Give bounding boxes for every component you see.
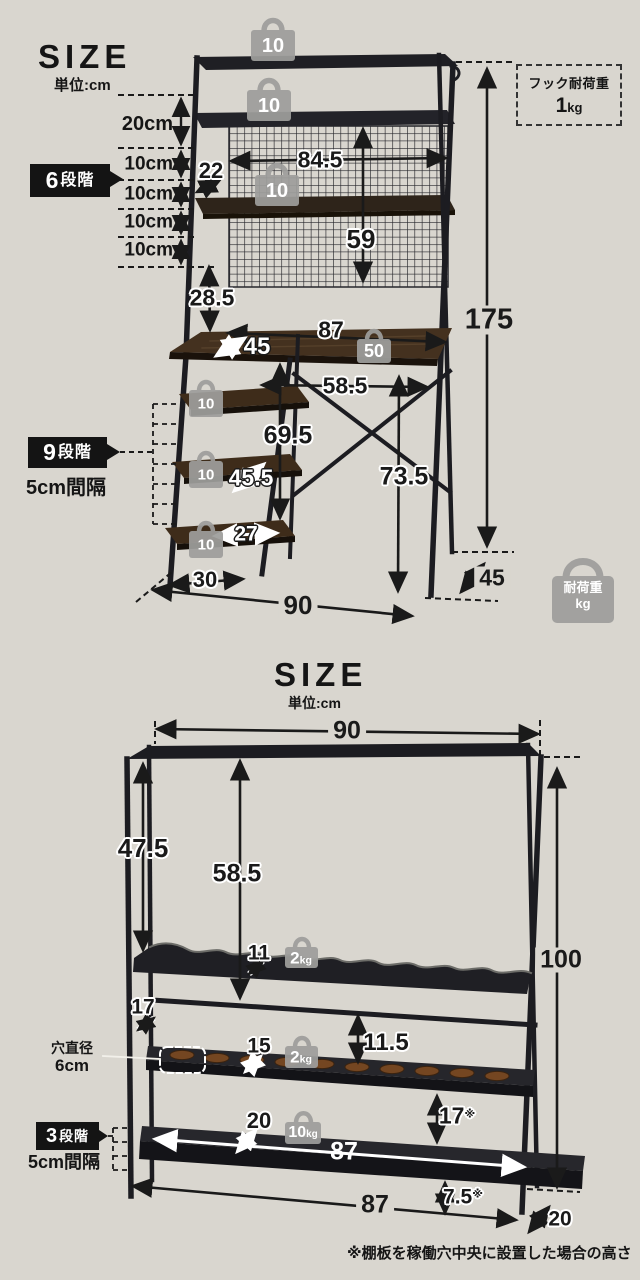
dim-shelf1-depth: 11 (248, 943, 270, 964)
three-steps-label: 3段階 (36, 1122, 99, 1150)
dim-side-width: 27 (234, 524, 257, 545)
dim-rack-front-height: 47.5 (118, 835, 169, 861)
left-measure-20cm: 20cm (95, 114, 173, 134)
dim-hutch-to-desk: 28.5 (190, 287, 235, 310)
six-steps-label: 6段階 (30, 164, 110, 197)
bag-10-5: 10 (198, 468, 215, 483)
three-steps-sub: 5cm間隔 (28, 1153, 100, 1171)
dim-bottom-width: 87 (356, 1193, 394, 1218)
dim-rack-width: 90 (328, 719, 366, 744)
nine-steps-label: 9段階 (28, 437, 107, 468)
top-size-unit: 単位:cm (54, 78, 111, 93)
dim-rack-depth: 20 (548, 1209, 571, 1230)
hook-load-title: フック耐荷重 (518, 73, 620, 92)
dim-hutch-gap: 22 (199, 160, 223, 182)
dim-total-height: 175 (460, 306, 518, 335)
bag-10-4: 10 (198, 397, 215, 412)
dim-side-depth: 30 (193, 569, 217, 591)
dim-mesh-width: 84.5 (298, 149, 343, 172)
left-measure-10cm-3: 10cm (95, 213, 173, 232)
bag-10-1: 10 (262, 36, 284, 56)
dim-shelf3-depth: 20 (247, 1110, 271, 1132)
bag-10-3: 10 (266, 181, 288, 201)
bag-2kg-1: 2kg (290, 950, 312, 967)
dim-desk-width: 87 (318, 319, 344, 342)
dim-desk-depth: 45 (244, 335, 271, 359)
bag-10-2: 10 (258, 96, 280, 116)
bag-2kg-2: 2kg (290, 1049, 312, 1066)
furniture-size-diagram: SIZE 単位:cm フック耐荷重 1kg 20cm 10cm 10cm 10c… (0, 0, 640, 1280)
load-capacity-bag: 耐荷重 kg (552, 580, 614, 611)
bag-10-6: 10 (198, 538, 215, 553)
hook-load-box: フック耐荷重 1kg (516, 64, 622, 126)
bottom-size-title: SIZE (274, 658, 367, 691)
bottom-size-unit: 単位:cm (288, 696, 341, 710)
footnote: ※棚板を稼働穴中央に設置した場合の高さ (347, 1246, 632, 1261)
hole-diameter-label: 穴直径 6cm (42, 1040, 102, 1076)
dim-knee-height: 69.5 (264, 424, 313, 449)
dim-knee-width: 58.5 (323, 375, 368, 398)
dim-side-diag: 45.5 (229, 467, 274, 490)
dim-shelf2-shelf3-gap: 17※ (439, 1105, 475, 1128)
holed-shelf (103, 1046, 535, 1097)
hook-load-value: 1kg (518, 94, 620, 118)
dim-mesh-height: 59 (347, 226, 376, 252)
left-measure-10cm-4: 10cm (95, 241, 173, 260)
dim-desk-height: 73.5 (380, 465, 429, 490)
dim-floor-depth: 45 (474, 567, 510, 590)
dim-rail-shelf2-gap: 11.5 (363, 1031, 408, 1055)
dim-floor-width: 90 (279, 592, 318, 618)
dim-foot-height: 7.5※ (443, 1187, 483, 1208)
bag-50-desk: 50 (364, 342, 384, 360)
dim-shelf-width: 87 (330, 1140, 358, 1165)
top-size-title: SIZE (38, 40, 131, 73)
bag-10kg: 10kg (288, 1125, 317, 1141)
dim-shelf2-depth: 15 (247, 1036, 270, 1057)
dim-rail-gap: 17 (131, 997, 154, 1018)
dim-rack-total-height: 100 (535, 948, 587, 973)
nine-steps-sub: 5cm間隔 (26, 478, 106, 498)
dim-rack-inner-height: 58.5 (213, 862, 262, 887)
